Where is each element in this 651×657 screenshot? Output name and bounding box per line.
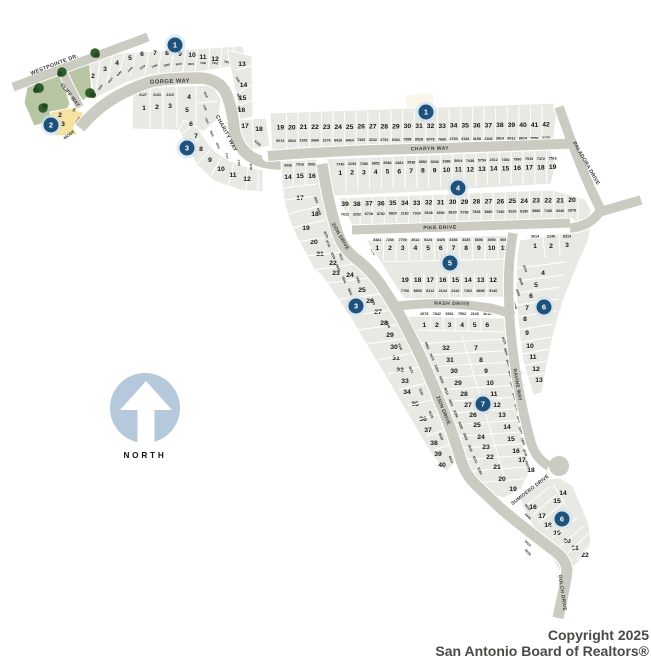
svg-text:24: 24	[520, 198, 528, 205]
svg-text:38: 38	[496, 122, 504, 129]
svg-text:7180: 7180	[544, 209, 552, 213]
svg-text:5: 5	[426, 245, 430, 252]
svg-text:8: 8	[464, 245, 468, 252]
svg-text:18: 18	[414, 277, 422, 284]
svg-text:14: 14	[490, 166, 498, 173]
svg-text:39: 39	[434, 451, 442, 458]
svg-text:2: 2	[388, 245, 392, 252]
svg-text:CHARYN WAY: CHARYN WAY	[411, 145, 450, 152]
svg-text:40: 40	[519, 122, 527, 129]
svg-text:22: 22	[486, 454, 494, 461]
svg-text:12: 12	[466, 166, 474, 173]
svg-text:7842: 7842	[433, 312, 441, 316]
svg-text:2760: 2760	[449, 137, 457, 141]
svg-text:9: 9	[484, 368, 488, 375]
svg-text:19: 19	[509, 486, 517, 493]
svg-text:32: 32	[442, 345, 450, 352]
svg-text:19: 19	[277, 125, 285, 132]
svg-text:34: 34	[403, 389, 411, 396]
svg-text:5: 5	[128, 55, 132, 62]
svg-text:21: 21	[493, 464, 501, 471]
svg-text:8728: 8728	[365, 212, 373, 216]
svg-text:Copyright 2025: Copyright 2025	[548, 627, 649, 643]
svg-text:8752: 8752	[377, 212, 385, 216]
svg-text:4: 4	[374, 169, 378, 176]
svg-text:1: 1	[338, 170, 342, 177]
svg-text:3226: 3226	[508, 210, 516, 214]
svg-text:42: 42	[542, 122, 550, 129]
svg-text:3158: 3158	[473, 137, 481, 141]
svg-text:5894: 5894	[413, 289, 422, 293]
svg-text:24: 24	[346, 272, 354, 279]
svg-text:10: 10	[443, 167, 451, 174]
svg-text:30: 30	[390, 344, 398, 351]
svg-text:2144: 2144	[439, 289, 448, 293]
svg-text:3666: 3666	[311, 139, 319, 143]
svg-text:5754: 5754	[478, 159, 487, 163]
svg-text:3814: 3814	[496, 137, 505, 141]
svg-text:3154: 3154	[348, 162, 357, 166]
svg-text:7706: 7706	[401, 289, 409, 293]
svg-text:26: 26	[497, 198, 505, 205]
svg-text:4: 4	[115, 60, 119, 67]
svg-text:10: 10	[188, 52, 196, 59]
svg-text:15: 15	[452, 277, 460, 284]
svg-text:6: 6	[397, 168, 401, 175]
svg-text:2: 2	[435, 322, 439, 329]
svg-text:17: 17	[426, 277, 434, 284]
svg-text:8620: 8620	[448, 211, 456, 215]
svg-text:5004: 5004	[454, 159, 463, 163]
svg-text:7740: 7740	[336, 163, 344, 167]
svg-text:38: 38	[353, 201, 361, 208]
svg-text:7510: 7510	[525, 157, 533, 161]
svg-text:2: 2	[49, 121, 53, 130]
svg-text:1: 1	[375, 245, 379, 252]
svg-text:3326: 3326	[462, 238, 470, 242]
svg-text:San Antonio Board of Realtors®: San Antonio Board of Realtors®	[435, 643, 649, 657]
svg-text:7858: 7858	[403, 138, 411, 142]
svg-text:1: 1	[173, 41, 177, 50]
svg-text:6: 6	[529, 293, 533, 300]
svg-text:7: 7	[409, 168, 413, 175]
svg-text:30: 30	[449, 199, 457, 206]
svg-text:29: 29	[392, 123, 400, 130]
svg-text:21: 21	[300, 124, 308, 131]
svg-text:16: 16	[439, 277, 447, 284]
svg-text:2276: 2276	[322, 139, 330, 143]
svg-text:8: 8	[523, 316, 527, 323]
svg-text:7: 7	[525, 305, 529, 312]
svg-text:5888: 5888	[532, 209, 540, 213]
svg-text:3: 3	[185, 144, 189, 153]
svg-text:17: 17	[525, 165, 533, 172]
svg-text:10: 10	[526, 343, 534, 350]
svg-text:22: 22	[544, 198, 552, 205]
svg-text:11: 11	[529, 354, 536, 361]
svg-text:7290: 7290	[496, 210, 504, 214]
svg-text:7260: 7260	[386, 238, 394, 242]
svg-text:7330: 7330	[413, 211, 421, 215]
svg-text:3: 3	[354, 302, 358, 311]
svg-text:5: 5	[473, 322, 477, 329]
svg-text:12: 12	[493, 402, 501, 409]
svg-text:2878: 2878	[568, 209, 576, 213]
svg-text:6: 6	[542, 303, 546, 312]
svg-text:23: 23	[532, 198, 540, 205]
svg-text:8078: 8078	[426, 137, 434, 141]
svg-text:8426: 8426	[334, 138, 342, 142]
svg-text:20: 20	[563, 538, 571, 545]
svg-text:37: 37	[365, 201, 373, 208]
svg-text:16: 16	[308, 173, 316, 180]
svg-text:8: 8	[421, 168, 425, 175]
svg-text:14: 14	[503, 424, 511, 431]
svg-text:31: 31	[415, 123, 423, 130]
svg-text:3: 3	[362, 169, 366, 176]
svg-text:30: 30	[450, 368, 458, 375]
svg-text:24: 24	[334, 124, 342, 131]
svg-text:15: 15	[507, 436, 515, 443]
svg-text:3: 3	[401, 245, 405, 252]
svg-text:28: 28	[460, 391, 468, 398]
svg-text:13: 13	[477, 277, 485, 284]
svg-text:2242: 2242	[451, 289, 459, 293]
svg-text:36: 36	[377, 200, 385, 207]
svg-text:3538: 3538	[407, 161, 415, 165]
svg-text:31: 31	[446, 357, 454, 364]
svg-text:8180: 8180	[520, 209, 528, 213]
svg-text:3: 3	[448, 322, 452, 329]
svg-text:37: 37	[485, 122, 493, 129]
svg-text:18: 18	[255, 126, 263, 133]
svg-text:2792: 2792	[380, 138, 388, 142]
svg-text:17: 17	[538, 513, 546, 520]
svg-text:2182: 2182	[401, 212, 409, 216]
svg-text:3880: 3880	[484, 210, 492, 214]
svg-text:13: 13	[498, 412, 506, 419]
svg-text:32: 32	[427, 123, 435, 130]
svg-text:10: 10	[217, 166, 225, 173]
svg-text:2119: 2119	[166, 93, 174, 97]
svg-text:5092: 5092	[308, 163, 316, 167]
svg-text:15: 15	[502, 165, 510, 172]
svg-text:28: 28	[381, 123, 389, 130]
svg-text:3614: 3614	[531, 235, 540, 239]
svg-text:8746: 8746	[249, 164, 254, 171]
svg-text:8852: 8852	[419, 160, 427, 164]
svg-text:13: 13	[535, 377, 543, 384]
svg-text:9: 9	[477, 245, 481, 252]
svg-text:7280: 7280	[200, 61, 207, 66]
svg-text:8820: 8820	[389, 212, 397, 216]
svg-text:32: 32	[425, 200, 433, 207]
svg-text:3: 3	[565, 242, 569, 249]
svg-text:39: 39	[508, 122, 516, 129]
svg-text:15: 15	[553, 498, 561, 505]
svg-text:10: 10	[488, 245, 496, 252]
svg-text:7: 7	[474, 345, 478, 352]
svg-text:5: 5	[448, 259, 452, 268]
svg-text:6: 6	[560, 515, 564, 524]
svg-text:13: 13	[238, 61, 246, 68]
svg-text:5074: 5074	[276, 139, 285, 143]
svg-text:11: 11	[455, 167, 462, 174]
svg-text:36: 36	[473, 122, 481, 129]
svg-text:2: 2	[155, 104, 159, 111]
svg-text:16: 16	[514, 165, 522, 172]
svg-text:NORTH: NORTH	[123, 451, 166, 460]
svg-text:8464: 8464	[346, 138, 355, 142]
svg-text:3954: 3954	[436, 211, 445, 215]
svg-text:5798: 5798	[460, 210, 468, 214]
svg-text:39: 39	[341, 201, 349, 208]
svg-text:25: 25	[346, 124, 354, 131]
svg-text:16: 16	[512, 448, 520, 455]
svg-text:8336: 8336	[431, 160, 439, 164]
svg-text:3336: 3336	[284, 164, 292, 168]
svg-text:7: 7	[153, 50, 157, 57]
svg-text:7438: 7438	[466, 159, 474, 163]
svg-text:25: 25	[358, 287, 366, 294]
svg-text:4: 4	[187, 94, 191, 101]
svg-text:8482: 8482	[373, 238, 381, 242]
svg-text:7: 7	[194, 133, 198, 140]
svg-text:2140: 2140	[547, 235, 555, 239]
svg-text:7990: 7990	[513, 158, 521, 162]
svg-text:3426: 3426	[437, 238, 445, 242]
svg-text:3340: 3340	[556, 209, 564, 213]
svg-text:8: 8	[479, 357, 483, 364]
svg-text:33: 33	[401, 378, 409, 385]
svg-text:38: 38	[430, 440, 438, 447]
svg-text:7828: 7828	[472, 210, 480, 214]
svg-text:8084: 8084	[383, 161, 392, 165]
svg-text:23: 23	[323, 124, 331, 131]
svg-text:3: 3	[61, 121, 65, 128]
svg-text:24: 24	[477, 434, 485, 441]
svg-text:6: 6	[140, 51, 144, 58]
svg-text:7462: 7462	[464, 289, 472, 293]
svg-text:7352: 7352	[501, 158, 509, 162]
svg-text:9: 9	[433, 167, 437, 174]
svg-text:35: 35	[389, 200, 397, 207]
svg-text:20: 20	[498, 476, 506, 483]
svg-text:34: 34	[450, 123, 458, 130]
svg-text:2342: 2342	[299, 139, 307, 143]
svg-text:27: 27	[485, 199, 493, 206]
svg-text:8656: 8656	[475, 238, 483, 242]
svg-text:5402: 5402	[392, 138, 400, 142]
svg-text:2: 2	[91, 73, 95, 80]
svg-text:41: 41	[531, 122, 539, 129]
svg-text:3166: 3166	[449, 238, 457, 242]
svg-text:6: 6	[439, 245, 443, 252]
svg-text:2123: 2123	[153, 93, 161, 97]
svg-text:7612: 7612	[341, 213, 349, 217]
svg-text:18: 18	[527, 467, 535, 474]
svg-text:12: 12	[243, 176, 251, 183]
svg-text:8: 8	[199, 146, 203, 153]
svg-text:9: 9	[208, 157, 212, 164]
svg-text:1: 1	[533, 243, 537, 250]
svg-text:3532: 3532	[445, 312, 453, 316]
svg-text:1: 1	[422, 322, 426, 329]
svg-text:3612: 3612	[411, 238, 419, 242]
svg-text:5124: 5124	[424, 238, 433, 242]
svg-text:3232: 3232	[369, 138, 377, 142]
svg-text:2484: 2484	[395, 161, 404, 165]
svg-text:3852: 3852	[372, 162, 380, 166]
svg-text:29: 29	[454, 380, 462, 387]
svg-text:28: 28	[473, 199, 481, 206]
svg-text:4: 4	[414, 245, 418, 252]
svg-text:23: 23	[482, 444, 490, 451]
svg-text:12: 12	[489, 277, 497, 284]
svg-text:40: 40	[438, 462, 446, 469]
svg-text:3550: 3550	[487, 238, 495, 242]
svg-text:7502: 7502	[458, 312, 466, 316]
svg-text:34: 34	[401, 200, 409, 207]
svg-text:3: 3	[168, 103, 172, 110]
svg-text:2824: 2824	[188, 62, 195, 66]
svg-text:10: 10	[486, 380, 494, 387]
svg-text:35: 35	[461, 123, 469, 130]
svg-text:11: 11	[229, 172, 236, 179]
svg-text:5348: 5348	[424, 211, 432, 215]
svg-text:7280: 7280	[360, 162, 368, 166]
svg-text:2312: 2312	[490, 158, 498, 162]
svg-text:7516: 7516	[549, 157, 557, 161]
svg-text:12: 12	[532, 366, 540, 373]
svg-text:31: 31	[437, 199, 445, 206]
svg-text:5: 5	[386, 169, 390, 176]
svg-text:1: 1	[142, 105, 146, 112]
svg-text:2146: 2146	[471, 312, 479, 316]
svg-text:26: 26	[357, 124, 365, 131]
svg-text:19: 19	[401, 277, 409, 284]
svg-text:5140: 5140	[489, 289, 497, 293]
svg-text:26: 26	[469, 412, 477, 419]
svg-text:33: 33	[413, 200, 421, 207]
svg-text:33: 33	[438, 123, 446, 130]
svg-text:6: 6	[189, 121, 193, 128]
svg-text:27: 27	[369, 124, 377, 131]
svg-text:5: 5	[185, 107, 189, 114]
svg-text:29: 29	[461, 199, 469, 206]
svg-text:27: 27	[464, 402, 472, 409]
svg-text:21: 21	[556, 197, 564, 204]
svg-text:20: 20	[568, 197, 576, 204]
svg-text:7: 7	[481, 400, 485, 409]
svg-text:18: 18	[537, 164, 545, 171]
svg-text:9: 9	[525, 330, 529, 337]
svg-text:8528: 8528	[415, 138, 423, 142]
svg-text:8314: 8314	[563, 235, 572, 239]
svg-text:2678: 2678	[420, 312, 428, 316]
svg-text:3916: 3916	[288, 139, 296, 143]
svg-text:13: 13	[478, 166, 486, 173]
svg-text:7: 7	[452, 245, 456, 252]
svg-text:7320: 7320	[357, 138, 365, 142]
svg-text:7616: 7616	[296, 163, 304, 167]
svg-text:3202: 3202	[353, 212, 361, 216]
svg-text:22: 22	[311, 124, 319, 131]
svg-text:PIKE DRIVE: PIKE DRIVE	[423, 225, 457, 232]
svg-text:30: 30	[404, 123, 412, 130]
svg-text:3136: 3136	[461, 137, 469, 141]
svg-text:11: 11	[490, 391, 497, 398]
svg-text:7666: 7666	[438, 137, 446, 141]
svg-text:19: 19	[549, 164, 557, 171]
svg-text:15: 15	[296, 173, 304, 180]
svg-text:14: 14	[464, 277, 472, 284]
svg-text:3: 3	[103, 66, 107, 73]
svg-text:2108: 2108	[484, 137, 492, 141]
svg-text:NASH DRIVE: NASH DRIVE	[434, 301, 470, 308]
svg-text:6: 6	[485, 322, 489, 329]
svg-text:37: 37	[424, 427, 432, 434]
svg-text:7750: 7750	[399, 238, 407, 242]
svg-text:2127: 2127	[139, 93, 147, 97]
svg-text:7372: 7372	[537, 157, 545, 161]
svg-text:17: 17	[241, 123, 249, 130]
svg-text:2: 2	[350, 170, 354, 177]
svg-text:14: 14	[240, 82, 248, 89]
svg-text:29: 29	[386, 332, 394, 339]
svg-text:4: 4	[460, 322, 464, 329]
svg-text:20: 20	[288, 124, 296, 131]
svg-text:2: 2	[549, 243, 553, 250]
svg-text:5: 5	[534, 282, 538, 289]
svg-text:1: 1	[424, 108, 428, 117]
svg-text:25: 25	[473, 422, 481, 429]
svg-text:4: 4	[541, 270, 545, 277]
svg-text:25: 25	[509, 198, 517, 205]
svg-text:8896: 8896	[476, 289, 484, 293]
svg-text:19: 19	[302, 225, 310, 232]
svg-text:3386: 3386	[442, 160, 450, 164]
svg-text:14: 14	[284, 174, 292, 181]
svg-text:8112: 8112	[426, 289, 434, 293]
